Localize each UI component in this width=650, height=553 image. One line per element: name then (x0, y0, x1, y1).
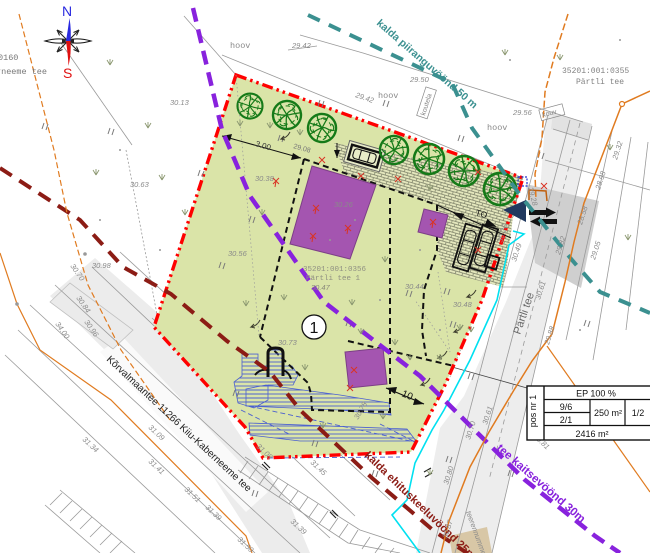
svg-text:1: 1 (310, 320, 319, 337)
svg-text:hoov: hoov (230, 41, 250, 51)
svg-text:30.26: 30.26 (334, 200, 354, 209)
svg-text:rneeme tee: rneeme tee (0, 67, 47, 77)
svg-text:250 m²: 250 m² (594, 408, 622, 418)
svg-text:S: S (63, 65, 72, 81)
svg-text:1/2: 1/2 (632, 408, 645, 418)
svg-text:2/1: 2/1 (560, 415, 573, 425)
svg-text:30.47: 30.47 (311, 283, 331, 292)
svg-text:hoov: hoov (487, 123, 507, 133)
svg-text:30.13: 30.13 (170, 98, 190, 107)
svg-text:29.56: 29.56 (512, 108, 533, 117)
svg-text:30.56: 30.56 (228, 249, 248, 258)
svg-text:hoov: hoov (378, 91, 398, 101)
svg-text:pos nr 1: pos nr 1 (528, 395, 538, 428)
svg-text:EP 100 %: EP 100 % (576, 389, 616, 399)
svg-text:9/6: 9/6 (560, 402, 573, 412)
svg-text:29.50: 29.50 (409, 75, 430, 84)
svg-text:0160: 0160 (0, 53, 18, 63)
svg-text:Pärtli tee 1: Pärtli tee 1 (306, 275, 361, 283)
svg-text:N: N (62, 3, 72, 19)
svg-text:30.63: 30.63 (130, 180, 150, 189)
svg-text:2416 m²: 2416 m² (575, 429, 608, 439)
svg-text:35201:001:0355: 35201:001:0355 (562, 67, 629, 76)
svg-text:30.98: 30.98 (92, 261, 112, 270)
svg-text:29.42: 29.42 (291, 41, 312, 50)
svg-text:Pärtli tee: Pärtli tee (576, 78, 624, 87)
svg-text:30.44: 30.44 (405, 282, 424, 291)
svg-text:30.38: 30.38 (255, 174, 275, 183)
svg-text:35201:001:0356: 35201:001:0356 (303, 266, 367, 274)
svg-text:30.48: 30.48 (453, 300, 473, 309)
svg-text:30.73: 30.73 (278, 338, 298, 347)
